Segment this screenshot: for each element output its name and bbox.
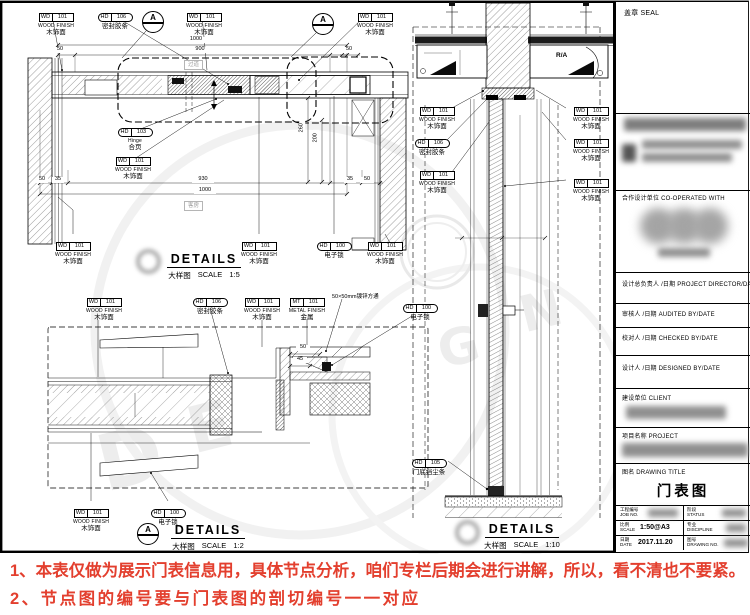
tag-code-box: WD101 [420, 171, 455, 180]
room-tag-corridor: 过道 [184, 60, 203, 70]
blurred-text [622, 144, 636, 162]
dimension: 50 [360, 177, 374, 183]
section-marker-a: A [137, 523, 159, 545]
status-label: 阶段STATUS [687, 507, 704, 518]
detail-subtitle: 大样图 SCALE 1:5 [160, 270, 248, 281]
section-marker-a: A [312, 13, 334, 35]
divider [616, 272, 750, 273]
material-tag-wd101: WD101 WOOD FINISH 木饰面 [362, 235, 408, 266]
tag-code-box: HD106 [98, 13, 133, 22]
dimension: 35 [52, 177, 64, 183]
tag-code-box: WD101 [56, 242, 91, 251]
divider [616, 427, 750, 428]
divider [616, 463, 750, 464]
material-tag-wd101: WD101 WOOD FINISH 木饰面 [81, 291, 127, 322]
client-label: 建设单位 CLIENT [622, 393, 671, 402]
material-tag-wd101: WD101 WOOD FINISH 木饰面 [352, 6, 398, 37]
divider [616, 388, 750, 389]
tag-code-box: WD101 [116, 157, 151, 166]
date-value: 2017.11.20 [638, 539, 673, 546]
drawing-sheet: D E G N [0, 0, 750, 615]
dimension: 1000 [185, 37, 207, 43]
dimension: 50 [36, 177, 48, 183]
divider [616, 303, 750, 304]
discipline-label: 专业DISCIPLINE [687, 522, 713, 533]
checked-label: 校对人 /日期 CHECKED BY/DATE [622, 333, 718, 342]
ra-label: R/A [556, 52, 567, 59]
drawing-title: 门表图 [616, 480, 750, 501]
material-tag-hd100: HD100 电子锁 [312, 235, 356, 259]
project-label: 项目名称 PROJECT [622, 431, 678, 440]
material-tag-wd101: WD101 WOOD FINISH 木饰面 [33, 6, 79, 37]
tag-code-box: HD103 [118, 128, 153, 137]
tag-code-box: HD106 [193, 298, 228, 307]
dimension: 45 [293, 357, 307, 363]
material-tag-wd101: WD101 WOOD FINISH 木饰面 [181, 6, 227, 37]
tag-code-box: HD105 [412, 459, 447, 468]
dimension: 35 [344, 177, 356, 183]
material-tag-wd101: WD101 WOOD FINISH 木饰面 [68, 502, 114, 533]
material-tag-hd106: HD106 密封胶条 [410, 132, 454, 156]
material-tag-wd101: WD101 WOOD FINISH 木饰面 [50, 235, 96, 266]
room-tag-guest: 客房 [184, 201, 203, 211]
divider [616, 190, 750, 191]
title-block: 盖章 SEAL 合作设计单位 CO-OPERATED WITH 设计总负责人 /… [614, 2, 748, 552]
section-marker-a: A [142, 11, 164, 33]
detail-title-3: DETAILS 大样图 SCALE 1:10 [480, 520, 564, 551]
stamp-logo [455, 520, 480, 545]
blurred-text [658, 248, 710, 257]
tag-code-box: WD101 [245, 298, 280, 307]
tube-note: 50×50mm镀锌方通 [332, 292, 379, 300]
dimension: 930 [192, 177, 214, 183]
tag-code-box: WD101 [39, 13, 74, 22]
drawing-no-label: 图号DRAWING NO. [687, 537, 718, 548]
tag-code-box: WD101 [74, 509, 109, 518]
divider [616, 113, 750, 114]
material-tag-wd101: WD101 WOOD FINISH 木饰面 [239, 291, 285, 322]
blurred-text [642, 140, 742, 149]
tag-code-box: WD101 [368, 242, 403, 251]
divider [616, 327, 750, 328]
seal-label: 盖章 SEAL [624, 8, 659, 18]
tag-code-box: WD101 [358, 13, 393, 22]
detail-subtitle: 大样图 SCALE 1:2 [166, 541, 250, 552]
tag-code-box: HD100 [317, 242, 352, 251]
tag-code-box: WD101 [87, 298, 122, 307]
dimension: 1000 [194, 188, 216, 194]
detail-title-1: DETAILS 大样图 SCALE 1:5 [160, 250, 248, 281]
dimension: 50 [54, 47, 66, 53]
material-tag-wd101: WD101 WOOD FINISH 木饰面 [568, 172, 614, 203]
tag-code-box: MT101 [290, 298, 325, 307]
tag-code-box: WD101 [574, 107, 609, 116]
material-tag-hd105: HD105 门底挡尘条 [404, 452, 454, 476]
divider [683, 505, 684, 550]
material-tag-hd103: HD103 Hinge 合页 [113, 121, 157, 152]
material-tag-mt101: MT101 METAL FINISH 金属 [284, 291, 330, 322]
audited-label: 审核人 /日期 AUDITED BY/DATE [622, 309, 715, 318]
tag-code-box: WD101 [574, 139, 609, 148]
material-tag-hd100: HD100 电子锁 [398, 297, 442, 321]
material-tag-wd101: WD101 WOOD FINISH 木饰面 [414, 164, 460, 195]
tag-code-box: HD106 [415, 139, 450, 148]
material-tag-wd101: WD101 WOOD FINISH 木饰面 [568, 132, 614, 163]
blurred-text [648, 509, 678, 517]
blurred-text [642, 153, 732, 162]
detail-subtitle: 大样图 SCALE 1:10 [480, 540, 564, 551]
divider [616, 535, 750, 536]
dimension: 260 [299, 120, 305, 136]
tag-code-box: WD101 [420, 107, 455, 116]
divider [616, 355, 750, 356]
material-tag-wd101: WD101 WOOD FINISH 木饰面 [414, 100, 460, 131]
material-tag-wd101: WD101 WOOD FINISH 木饰面 [568, 100, 614, 131]
scale-value: 1:50@A3 [640, 524, 670, 531]
tag-code-box: HD100 [151, 509, 186, 518]
blurred-text [626, 406, 726, 419]
date-label: 日期DATE [620, 537, 632, 548]
blurred-text [624, 118, 746, 131]
material-tag-hd106: HD106 密封胶条 [188, 291, 232, 315]
job-no-label: 工程编号JOB NO. [620, 507, 638, 518]
dimension: 50 [342, 47, 356, 53]
blurred-text [726, 524, 746, 532]
dimension: 900 [189, 47, 211, 53]
scale-label: 比例SCALE [620, 522, 635, 533]
blurred-text [622, 443, 748, 457]
note-line-1: 1、本表仅做为展示门表信息用，具体节点分析，咱们专栏后期会进行讲解，所以，看不清… [10, 557, 745, 581]
tag-code-box: WD101 [574, 179, 609, 188]
blurred-text [722, 509, 746, 517]
cooperated-label: 合作设计单位 CO-OPERATED WITH [622, 193, 725, 202]
blurred-logo [692, 208, 728, 244]
divider [616, 520, 750, 521]
detail-title-2: DETAILS 大样图 SCALE 1:2 [166, 521, 250, 552]
stamp-logo [136, 249, 161, 274]
dimension: 200 [313, 130, 319, 146]
tag-code-box: WD101 [187, 13, 222, 22]
blurred-text [724, 539, 748, 547]
tag-code-box: HD100 [403, 304, 438, 313]
director-label: 设计总负责人 /日期 PROJECT DIRECTOR/DATE [622, 279, 750, 288]
note-line-2: 2、节点图的编号要与门表图的剖切编号一一对应 [10, 585, 421, 609]
material-tag-hd106: HD106 密封胶条 [93, 6, 137, 30]
material-tag-wd101: WD101 WOOD FINISH 木饰面 [110, 150, 156, 181]
drawing-title-label: 图名 DRAWING TITLE [622, 467, 686, 476]
dimension: 50 [296, 345, 310, 351]
designed-label: 设计人 /日期 DESIGNED BY/DATE [622, 363, 720, 372]
